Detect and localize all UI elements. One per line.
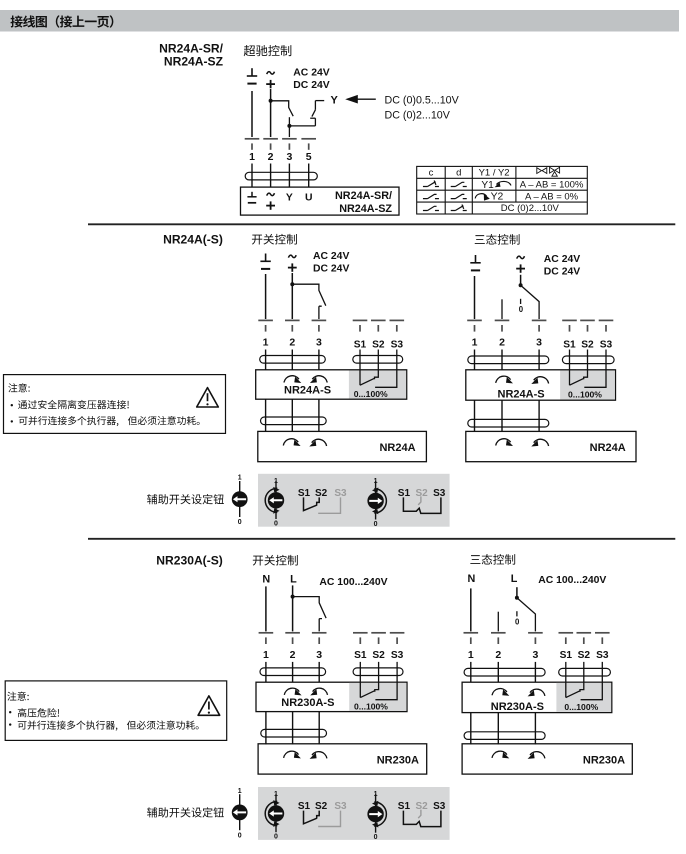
svg-text:NR24A: NR24A — [590, 442, 626, 454]
svg-text:1: 1 — [238, 788, 242, 795]
svg-text:S3: S3 — [433, 801, 446, 812]
svg-text:S3: S3 — [334, 488, 347, 499]
svg-text:1: 1 — [274, 478, 278, 485]
svg-text:S3: S3 — [334, 801, 347, 812]
svg-text:1: 1 — [374, 478, 378, 485]
svg-text:S1: S1 — [354, 650, 367, 661]
svg-text:0: 0 — [274, 834, 278, 841]
svg-text:AC 24V: AC 24V — [313, 251, 349, 262]
svg-text:2: 2 — [289, 337, 295, 349]
svg-text:0: 0 — [515, 618, 520, 627]
svg-text:A – AB = 0%: A – AB = 0% — [525, 191, 579, 202]
svg-text:NR230A: NR230A — [583, 755, 625, 767]
svg-text:Y: Y — [331, 94, 339, 106]
svg-text:0: 0 — [274, 520, 278, 527]
svg-text:2: 2 — [499, 337, 505, 349]
svg-text:NR24A-SZ: NR24A-SZ — [164, 55, 224, 69]
svg-text:DC 24V: DC 24V — [313, 263, 349, 274]
svg-text:DC (0)0.5...10V: DC (0)0.5...10V — [385, 94, 460, 106]
svg-text:N: N — [262, 573, 270, 585]
svg-text:DC (0)2...10V: DC (0)2...10V — [501, 203, 560, 214]
svg-text:1: 1 — [274, 791, 278, 798]
svg-text:1: 1 — [263, 337, 269, 349]
svg-text:S2: S2 — [415, 488, 428, 499]
svg-text:AC 24V: AC 24V — [544, 254, 580, 265]
svg-text:S3: S3 — [433, 488, 446, 499]
svg-text:NR24A(-S): NR24A(-S) — [163, 232, 223, 246]
svg-text:NR230A-S: NR230A-S — [281, 697, 334, 709]
svg-text:NR24A-S: NR24A-S — [284, 385, 331, 397]
svg-text:1: 1 — [238, 475, 242, 482]
svg-text:NR230A(-S): NR230A(-S) — [156, 554, 223, 568]
svg-text:S1: S1 — [354, 339, 367, 350]
svg-text:S2: S2 — [581, 339, 594, 350]
svg-text:S2: S2 — [315, 801, 328, 812]
svg-text:U: U — [305, 192, 313, 203]
svg-text:S2: S2 — [372, 339, 385, 350]
svg-text:DC 24V: DC 24V — [293, 80, 329, 91]
svg-text:1: 1 — [263, 649, 269, 661]
svg-text:N: N — [467, 573, 475, 585]
svg-text:NR24A-S: NR24A-S — [498, 389, 545, 401]
svg-text:c: c — [429, 168, 434, 179]
svg-text:S2: S2 — [372, 650, 385, 661]
svg-text:Y: Y — [286, 192, 293, 203]
svg-text:NR24A: NR24A — [379, 442, 415, 454]
svg-text:0...100%: 0...100% — [354, 702, 388, 712]
svg-text:2: 2 — [495, 649, 501, 661]
svg-text:NR230A: NR230A — [377, 755, 419, 767]
svg-text:S3: S3 — [391, 650, 404, 661]
svg-text:0: 0 — [519, 305, 524, 314]
svg-text:NR230A-S: NR230A-S — [491, 701, 544, 713]
svg-text:1: 1 — [468, 649, 474, 661]
svg-text:S1: S1 — [398, 801, 411, 812]
svg-text:AC 24V: AC 24V — [293, 67, 329, 78]
svg-text:S1: S1 — [298, 801, 311, 812]
svg-text:S1: S1 — [560, 650, 573, 661]
svg-text:AC 100...240V: AC 100...240V — [538, 575, 606, 586]
svg-text:S2: S2 — [578, 650, 591, 661]
svg-text:0: 0 — [238, 832, 242, 839]
svg-text:3: 3 — [286, 151, 292, 163]
svg-text:NR24A-SZ: NR24A-SZ — [339, 203, 392, 215]
svg-text:DC (0)2...10V: DC (0)2...10V — [385, 109, 451, 121]
svg-text:Y1 / Y2: Y1 / Y2 — [479, 168, 510, 179]
svg-text:0...100%: 0...100% — [564, 702, 598, 712]
svg-text:Y2: Y2 — [491, 192, 504, 203]
svg-text:2: 2 — [268, 151, 274, 163]
svg-text:S2: S2 — [315, 488, 328, 499]
svg-text:0: 0 — [374, 834, 378, 841]
svg-text:3: 3 — [536, 337, 542, 349]
svg-text:5: 5 — [306, 151, 312, 163]
svg-text:AC 100...240V: AC 100...240V — [319, 577, 387, 588]
svg-text:DC 24V: DC 24V — [544, 266, 580, 277]
svg-text:0...100%: 0...100% — [568, 389, 602, 399]
svg-text:0: 0 — [238, 519, 242, 526]
svg-text:L: L — [290, 573, 297, 585]
svg-text:S3: S3 — [391, 339, 404, 350]
svg-text:1: 1 — [374, 791, 378, 798]
svg-text:NR24A-SR/: NR24A-SR/ — [335, 190, 392, 202]
svg-text:NR24A-SR/: NR24A-SR/ — [159, 42, 223, 56]
svg-text:S3: S3 — [596, 650, 609, 661]
svg-text:1: 1 — [249, 151, 255, 163]
svg-text:0: 0 — [374, 521, 378, 528]
svg-text:0...100%: 0...100% — [354, 389, 388, 399]
svg-text:d: d — [456, 168, 461, 179]
svg-text:S3: S3 — [600, 339, 613, 350]
svg-text:S1: S1 — [298, 488, 311, 499]
svg-text:1: 1 — [472, 337, 478, 349]
svg-text:3: 3 — [532, 649, 538, 661]
svg-text:Y1: Y1 — [481, 180, 494, 191]
svg-text:3: 3 — [316, 337, 322, 349]
svg-text:S1: S1 — [398, 488, 411, 499]
svg-text:A – AB = 100%: A – AB = 100% — [520, 179, 584, 190]
svg-text:2: 2 — [290, 649, 296, 661]
svg-text:S1: S1 — [563, 339, 576, 350]
svg-text:S2: S2 — [415, 801, 428, 812]
svg-text:3: 3 — [316, 649, 322, 661]
svg-text:L: L — [511, 573, 518, 585]
